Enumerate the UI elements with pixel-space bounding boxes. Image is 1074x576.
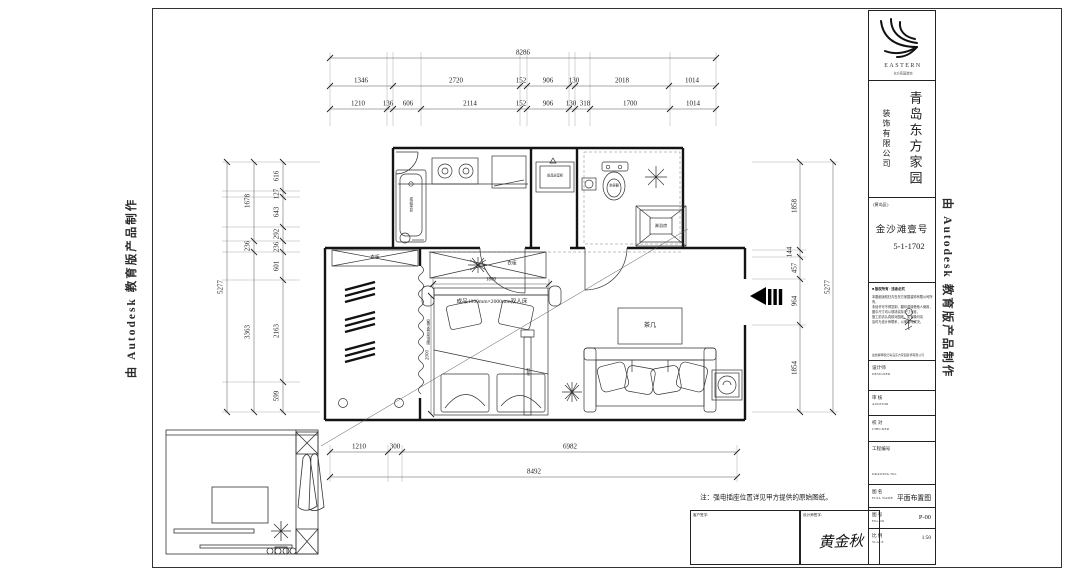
dim-label: 152 — [516, 101, 527, 108]
dim-label: 318 — [580, 101, 591, 108]
row-label-en: CHECKER — [872, 427, 889, 431]
logo-subtext: 东方家园装饰 — [893, 72, 912, 75]
dim-label: 1678 — [245, 194, 252, 208]
row-label-en: DESIGNER — [872, 372, 890, 376]
dim-label: 2114 — [463, 101, 477, 108]
toilet-label: 坐便器 — [609, 184, 619, 187]
row-label-cn: 图 号 — [872, 512, 882, 518]
bed-label: 成品1800mm×2000mm双人床 — [457, 300, 528, 306]
title-block-row-checker: 校 对 CHECKER — [869, 416, 935, 442]
eastern-logo-icon — [869, 13, 935, 59]
entry-arrow — [750, 287, 782, 305]
row-label-en: DRAWING NO. — [872, 472, 897, 476]
wardrobe-hatching — [345, 282, 375, 362]
dim-label: 300 — [390, 444, 401, 451]
autodesk-watermark-left: 由 Autodesk 教育版产品制作 — [123, 198, 139, 378]
autodesk-watermark-right: 由 Autodesk 教育版产品制作 — [940, 198, 956, 378]
cabinet-label: 衣柜 — [507, 262, 516, 267]
scale-value: 1:50 — [922, 535, 931, 541]
dim-label: 127 — [274, 189, 281, 200]
coffee-table-label: 茶几 — [644, 323, 656, 329]
fig-no-value: P-00 — [919, 514, 931, 521]
dim-label: 2018 — [615, 78, 629, 85]
dim-label: 8286 — [516, 50, 530, 57]
dim-label: 1700 — [623, 101, 637, 108]
title-block-logo: EASTERN 东方家园装饰 — [869, 11, 935, 81]
title-block: EASTERN 东方家园装饰 青岛东方家园 装饰有限公司 (黄岛区) 金沙滩壹号… — [868, 10, 936, 565]
curtain-label: 窗帘盒见吊顶图 — [426, 319, 430, 344]
row-label-cn: 设计师 — [872, 365, 886, 371]
dim-label: 964 — [792, 296, 799, 307]
dim-label: 292 — [274, 229, 281, 240]
disclaimer-text: 本图纸版权归青岛东方家园装饰有限公司所有， 未经许可不得复制、翻印或转借他人使用… — [872, 295, 934, 325]
project-number: 5-1-1702 — [893, 242, 924, 251]
dim-label: 1854 — [792, 361, 799, 375]
dim-label: 2163 — [274, 324, 281, 338]
row-label-cn: 比 例 — [872, 533, 882, 539]
screen-label: 鞋柜 — [526, 368, 530, 375]
title-block-row-drawing-no: 工程编号 DRAWING NO. — [869, 442, 935, 485]
dim-label: 2000 — [426, 350, 431, 360]
dim-label: 5277 — [825, 280, 832, 294]
dim-label: 606 — [403, 101, 414, 108]
title-block-disclaimer: ■ 版权所有 · 违者必究 本图纸版权归青岛东方家园装饰有限公司所有， 未经许可… — [869, 283, 935, 361]
dim-label: 1210 — [352, 444, 366, 451]
row-label-en: SCALE — [872, 540, 884, 544]
dim-label: 2720 — [449, 78, 463, 85]
dim-label: 130 — [569, 78, 580, 85]
sink-label: 成品菜盆 — [409, 197, 413, 211]
dim-label: 1014 — [685, 78, 699, 85]
dim-label: 457 — [792, 263, 799, 274]
client-signature-label: 客户签字: — [693, 513, 708, 518]
title-block-row-scale: 比 例 SCALE 1:50 — [869, 529, 935, 565]
row-label-cn: 图 名 — [872, 489, 882, 495]
bathroom-fixtures — [536, 158, 686, 246]
dim-label: 5277 — [218, 280, 225, 294]
designer-signature-label: 设计师签字: — [803, 513, 822, 518]
dim-label: 136 — [383, 101, 394, 108]
dim-label: 152 — [516, 78, 527, 85]
tv-wall-elevation — [166, 430, 324, 554]
dim-label: 599 — [274, 391, 281, 402]
dashed-ceiling-lines — [428, 152, 683, 252]
title-block-row-drawing-name: 图 名 FULL NAME 平面布置图 — [869, 485, 935, 508]
drawing-name-value: 平面布置图 — [897, 492, 931, 502]
row-label-en: FIG.NO — [872, 519, 884, 523]
dim-label: 1014 — [686, 101, 700, 108]
dim-label: 8492 — [527, 469, 541, 476]
title-block-project: (黄岛区) 金沙滩壹号 5-1-1702 — [869, 198, 935, 283]
curtain-line — [419, 266, 424, 394]
dim-label: 6982 — [563, 444, 577, 451]
project-region: (黄岛区) — [873, 202, 888, 208]
vanity-label: 成品浴室柜 — [547, 174, 563, 177]
dim-label: 1858 — [792, 199, 799, 213]
dim-label: 144 — [787, 247, 794, 258]
designer-signature-name: 黄金秋 — [818, 535, 864, 552]
disclaimer-line: 及时与设计师联系，以便及时解决。 — [872, 320, 934, 325]
dim-label: 1800 — [486, 278, 496, 283]
company-name: 青岛东方家园 — [909, 91, 922, 187]
logo-text: EASTERN — [884, 63, 922, 69]
title-block-row-fig-no: 图 号 FIG.NO P-00 — [869, 508, 935, 529]
cad-drawing-sheet: 由 Autodesk 教育版产品制作 由 Autodesk 教育版产品制作 82… — [0, 0, 1074, 576]
dim-label: 601 — [274, 261, 281, 272]
row-label-en: FULL NAME — [872, 496, 893, 500]
door-swings — [396, 152, 627, 293]
dim-label: 616 — [274, 171, 281, 182]
shower-label: 淋浴房 — [655, 224, 668, 228]
dim-label: 236 — [245, 241, 252, 252]
copyright-line: 最终解释权归青岛东方家园装饰有限公司 — [872, 353, 924, 357]
disclaimer-title: ■ 版权所有 · 违者必究 — [872, 286, 905, 291]
company-name-sub: 装饰有限公司 — [882, 109, 890, 169]
disclaimer-line: 本图纸版权归青岛东方家园装饰有限公司所有， — [872, 295, 934, 305]
title-block-company: 青岛东方家园 装饰有限公司 — [869, 81, 935, 198]
row-label-cn: 校 对 — [872, 420, 882, 426]
dim-label: 1346 — [354, 78, 368, 85]
dim-label: 1210 — [351, 101, 365, 108]
plan-note: 注：强电插座位置详见甲方提供的原始图纸。 — [700, 496, 832, 503]
title-block-row-auditor: 审 核 AUDITOR — [869, 391, 935, 416]
kitchen-fixtures — [396, 156, 528, 243]
title-block-row-designer: 设计师 DESIGNER — [869, 361, 935, 391]
dimension-lines — [227, 58, 833, 477]
dim-label: 3363 — [245, 325, 252, 339]
dim-label: 906 — [543, 101, 554, 108]
row-label-en: AUDITOR — [872, 402, 889, 406]
cabinet-label: 衣柜 — [370, 256, 379, 261]
dim-label: 130 — [566, 101, 577, 108]
dim-label: 643 — [274, 207, 281, 218]
project-name: 金沙滩壹号 — [876, 226, 929, 236]
dim-label: 236 — [274, 242, 281, 253]
dim-label: 906 — [543, 78, 554, 85]
client-signature-box: 客户签字: — [690, 510, 800, 565]
row-label-cn: 审 核 — [872, 395, 882, 401]
row-label-cn: 工程编号 — [872, 446, 890, 452]
